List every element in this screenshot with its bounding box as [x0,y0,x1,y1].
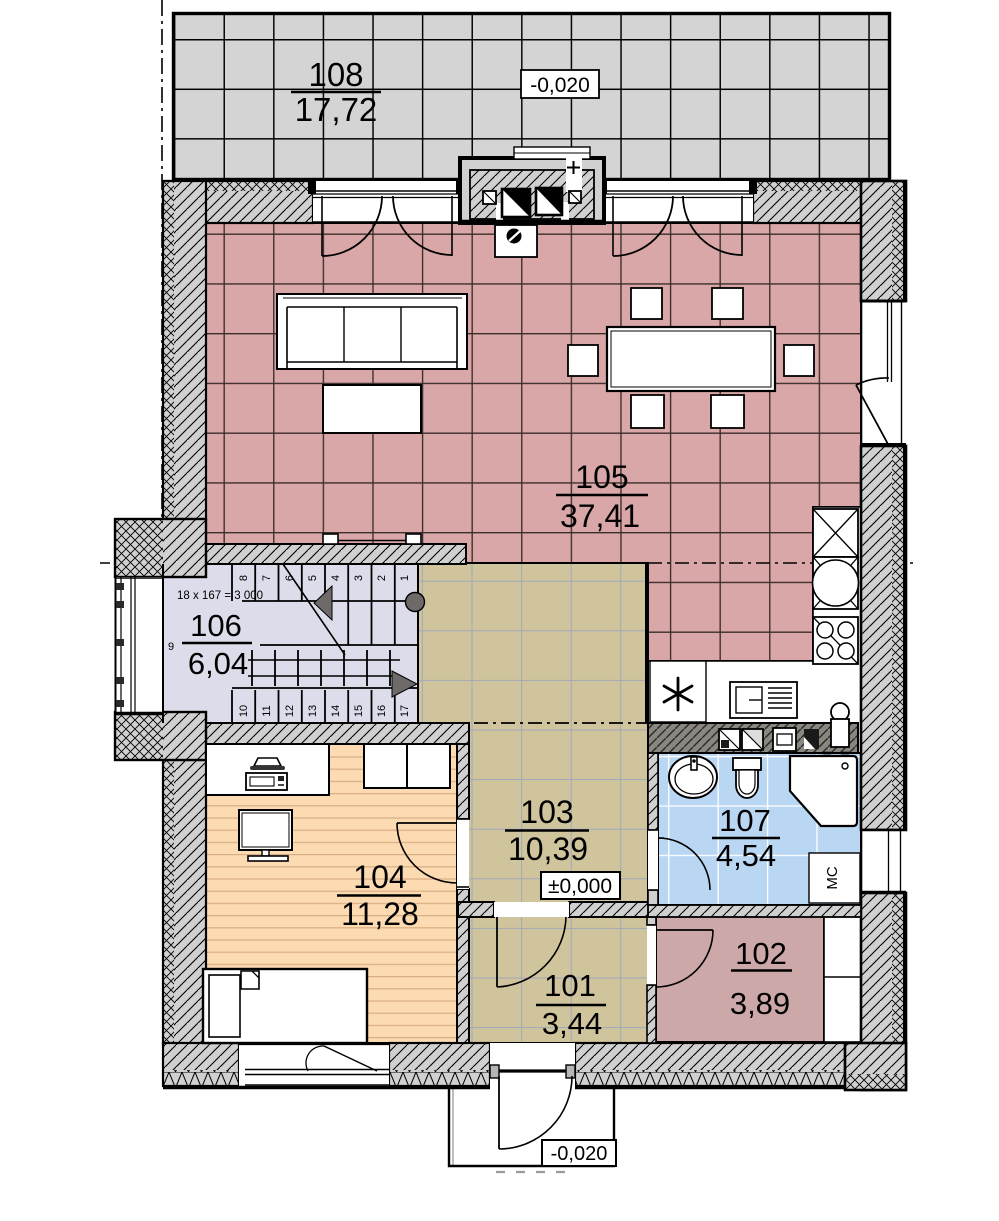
svg-text:17: 17 [399,705,411,717]
svg-text:-0,020: -0,020 [551,1143,608,1165]
svg-text:-0,020: -0,020 [530,74,590,97]
svg-text:10: 10 [238,705,250,717]
svg-text:3,44: 3,44 [542,1006,602,1041]
svg-text:2: 2 [376,575,388,581]
svg-text:12: 12 [284,705,296,717]
svg-text:105: 105 [575,459,628,495]
svg-text:103: 103 [520,794,573,830]
svg-text:107: 107 [719,803,771,838]
svg-text:102: 102 [735,936,787,971]
svg-text:11: 11 [261,705,273,716]
svg-text:104: 104 [353,859,406,895]
svg-text:10,39: 10,39 [508,831,588,867]
svg-text:3,89: 3,89 [730,986,790,1021]
svg-text:14: 14 [330,705,342,717]
svg-text:5: 5 [307,575,319,581]
svg-text:3: 3 [353,575,365,581]
svg-text:108: 108 [308,56,363,93]
svg-text:МС: МС [824,866,841,889]
svg-text:18 x 167 = 3 000: 18 x 167 = 3 000 [177,590,263,602]
svg-text:13: 13 [307,705,319,717]
svg-text:15: 15 [353,705,365,717]
svg-text:1: 1 [399,575,411,581]
svg-text:17,72: 17,72 [295,91,378,128]
svg-text:4,54: 4,54 [716,838,776,873]
svg-text:6,04: 6,04 [188,646,248,681]
svg-text:9: 9 [168,641,174,653]
svg-text:11,28: 11,28 [341,896,419,932]
svg-text:16: 16 [376,705,388,717]
svg-text:37,41: 37,41 [560,498,640,534]
svg-text:±0,000: ±0,000 [548,875,612,898]
svg-text:106: 106 [190,608,242,643]
svg-text:4: 4 [330,575,342,581]
svg-text:7: 7 [261,575,273,581]
svg-text:101: 101 [544,968,596,1003]
svg-text:8: 8 [238,575,250,581]
